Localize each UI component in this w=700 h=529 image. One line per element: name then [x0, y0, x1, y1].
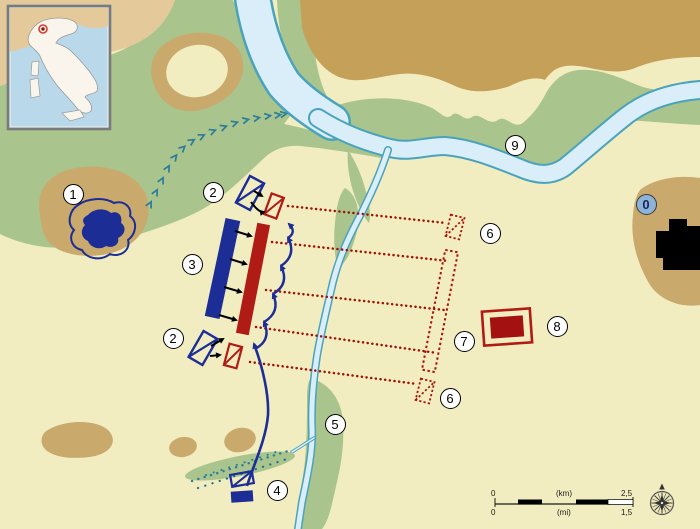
inset-corsica [31, 61, 39, 76]
marker-7-roman-column: 7 [454, 331, 475, 352]
marker-0-city: 0 [636, 194, 657, 215]
map-canvas [0, 0, 700, 529]
marker-9-river: 9 [505, 135, 526, 156]
marker-1-hannibal-camp: 1 [63, 184, 84, 205]
inset-sardinia [30, 78, 40, 98]
scale-km-max: 2,5 [621, 489, 632, 498]
marker-6-roman-cavalry-north: 6 [480, 223, 501, 244]
scale-mi-min: 0 [491, 508, 495, 517]
scale-km-unit: (km) [556, 489, 572, 498]
scale-mi-max: 1,5 [621, 508, 632, 517]
marker-8-roman-camp: 8 [547, 316, 568, 337]
marker-4-ambush-force: 4 [267, 480, 288, 501]
inset-map-italy [8, 6, 110, 129]
marker-5-stream: 5 [325, 414, 346, 435]
scale-mi-unit: (mi) [557, 508, 571, 517]
marker-2-cavalry-south: 2 [163, 328, 184, 349]
marker-3-battle-lines: 3 [182, 254, 203, 275]
marker-2-cavalry-north: 2 [203, 182, 224, 203]
marker-6-roman-cavalry-south: 6 [440, 388, 461, 409]
battle-map: 1 2 3 2 4 5 6 7 8 6 9 0 0 (km) 2,5 0 (mi… [0, 0, 700, 529]
scale-km-min: 0 [491, 489, 495, 498]
